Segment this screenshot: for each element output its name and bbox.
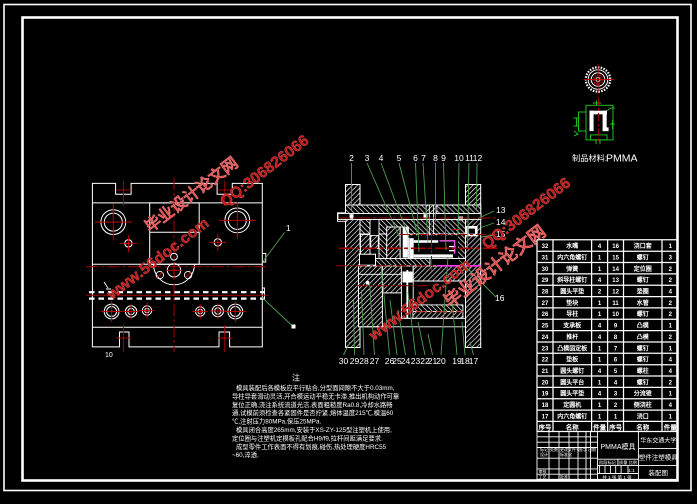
svg-text:2: 2 xyxy=(349,153,354,163)
svg-text:圆头螺钉: 圆头螺钉 xyxy=(560,367,584,375)
svg-text:28: 28 xyxy=(359,356,369,366)
svg-text:7: 7 xyxy=(421,153,426,163)
svg-text:1:1: 1:1 xyxy=(628,468,635,473)
svg-text:分流锥: 分流锥 xyxy=(634,390,652,398)
svg-text:20: 20 xyxy=(436,356,446,366)
svg-text:垫圈: 垫圈 xyxy=(637,288,649,296)
svg-text:23: 23 xyxy=(411,356,421,366)
svg-text:审核: 审核 xyxy=(539,468,547,474)
svg-text:导柱: 导柱 xyxy=(566,310,578,318)
svg-text:26: 26 xyxy=(542,312,549,318)
svg-text:16: 16 xyxy=(612,244,619,250)
svg-text:螺钉: 螺钉 xyxy=(637,310,649,318)
svg-text:成型零件工作表面不得有划痕,碰伤,热处理硬度HRC55: 成型零件工作表面不得有划痕,碰伤,热处理硬度HRC55 xyxy=(236,442,387,451)
svg-text:斜导柱螺钉: 斜导柱螺钉 xyxy=(556,276,587,284)
svg-text:14: 14 xyxy=(612,267,619,273)
svg-text:PMMA模具: PMMA模具 xyxy=(601,442,636,451)
svg-text:内六角螺钉: 内六角螺钉 xyxy=(557,412,587,420)
svg-text:复位正确,浇注系统流道光洁,表面粗糙度Ra0.8,冷却水路畅: 复位正确,浇注系统流道光洁,表面粗糙度Ra0.8,冷却水路畅 xyxy=(232,400,393,409)
svg-text:定位圈与注塑机定模板孔配合H9/f9,拉杆间距满足要求.: 定位圈与注塑机定模板孔配合H9/f9,拉杆间距满足要求. xyxy=(232,433,383,442)
svg-text:支承板: 支承板 xyxy=(562,322,582,330)
svg-text:圆头平台: 圆头平台 xyxy=(560,378,584,386)
svg-text:设计: 设计 xyxy=(540,451,548,457)
svg-text:螺钉: 螺钉 xyxy=(637,344,649,352)
svg-text:25: 25 xyxy=(542,324,549,330)
svg-text:13: 13 xyxy=(496,205,506,215)
svg-text:垫板: 垫板 xyxy=(566,356,579,364)
svg-text:工艺: 工艺 xyxy=(539,475,547,480)
svg-text:共 1 张 第 1 张: 共 1 张 第 1 张 xyxy=(602,474,632,481)
svg-text:3: 3 xyxy=(365,153,370,163)
svg-text:阶段标记: 阶段标记 xyxy=(599,459,617,466)
svg-text:24: 24 xyxy=(401,356,411,366)
svg-text:27: 27 xyxy=(370,356,380,366)
svg-text:℃,注射压力80MPa,保压25MPa.: ℃,注射压力80MPa,保压25MPa. xyxy=(232,417,321,426)
svg-text:12: 12 xyxy=(473,153,483,163)
svg-text:圆头平垫: 圆头平垫 xyxy=(560,390,584,398)
svg-text:23: 23 xyxy=(542,346,549,352)
svg-text:1: 1 xyxy=(286,223,291,233)
svg-text:10: 10 xyxy=(454,153,464,163)
svg-text:30: 30 xyxy=(339,356,349,366)
svg-text:28: 28 xyxy=(542,290,549,296)
svg-text:垫块: 垫块 xyxy=(566,299,579,307)
svg-text:PMMA: PMMA xyxy=(606,153,638,165)
svg-text:8: 8 xyxy=(433,153,438,163)
svg-text:凸模: 凸模 xyxy=(637,333,650,341)
svg-text:17: 17 xyxy=(469,356,479,366)
svg-text:水嘴: 水嘴 xyxy=(566,242,578,250)
svg-text:螺钉: 螺钉 xyxy=(637,356,649,364)
svg-text:水管: 水管 xyxy=(637,299,649,307)
svg-text:定圆机: 定圆机 xyxy=(562,401,581,409)
svg-text:~60,淬透.: ~60,淬透. xyxy=(232,450,259,459)
svg-text:30: 30 xyxy=(542,267,549,273)
svg-text:注: 注 xyxy=(292,373,300,383)
svg-text:10: 10 xyxy=(105,352,113,359)
svg-text:凸模: 凸模 xyxy=(637,322,650,330)
svg-text:13: 13 xyxy=(612,278,619,284)
svg-text:推杆: 推杆 xyxy=(566,333,578,341)
svg-text:9: 9 xyxy=(441,153,446,163)
svg-text:标记: 标记 xyxy=(540,446,548,452)
svg-text:装配图: 装配图 xyxy=(648,468,668,477)
svg-text:华东交通大学: 华东交通大学 xyxy=(640,437,676,445)
svg-text:16: 16 xyxy=(495,293,505,303)
svg-text:螺钉: 螺钉 xyxy=(637,378,649,386)
svg-text:19: 19 xyxy=(542,392,549,398)
svg-text:31: 31 xyxy=(542,256,549,262)
svg-text:21: 21 xyxy=(542,369,549,375)
svg-text:22: 22 xyxy=(542,358,549,364)
svg-text:制品材料:: 制品材料: xyxy=(572,153,607,163)
svg-text:4: 4 xyxy=(379,153,384,163)
svg-text:6: 6 xyxy=(413,153,418,163)
svg-text:导柱导套滑动灵活,开合模运动平稳无卡滞,推出机构动作可靠: 导柱导套滑动灵活,开合模运动平稳无卡滞,推出机构动作可靠 xyxy=(232,391,400,400)
svg-text:模具装配后各模板应平行贴合,分型面间隙不大于0.03mm,: 模具装配后各模板应平行贴合,分型面间隙不大于0.03mm, xyxy=(236,383,395,392)
svg-text:签字: 签字 xyxy=(579,446,587,452)
svg-text:10: 10 xyxy=(612,312,619,318)
svg-text:质量 比例: 质量 比例 xyxy=(619,459,637,466)
svg-text:圆头平垫: 圆头平垫 xyxy=(560,288,584,296)
svg-text:批准: 批准 xyxy=(560,474,568,480)
svg-text:标准化: 标准化 xyxy=(560,451,572,457)
svg-text:处数: 处数 xyxy=(550,446,558,452)
svg-text:18: 18 xyxy=(542,403,549,409)
svg-text:浇口套: 浇口套 xyxy=(634,242,652,250)
svg-text:日期: 日期 xyxy=(588,446,596,452)
svg-text:螺钉: 螺钉 xyxy=(637,254,649,262)
svg-text:17: 17 xyxy=(542,414,549,420)
svg-text:12: 12 xyxy=(612,290,619,296)
svg-text:螺柱: 螺柱 xyxy=(637,367,649,375)
svg-text:件量: 件量 xyxy=(664,422,678,431)
svg-text:侧浇柱: 侧浇柱 xyxy=(634,401,652,409)
svg-text:更改文件号: 更改文件号 xyxy=(560,446,580,452)
svg-text:定位圈: 定位圈 xyxy=(633,265,652,273)
svg-text:模具闭合高度265mm,安装于XS-ZY-125型注塑机上使: 模具闭合高度265mm,安装于XS-ZY-125型注塑机上使用, xyxy=(236,425,392,434)
svg-text:20: 20 xyxy=(542,380,549,386)
svg-text:序号: 序号 xyxy=(608,422,623,431)
svg-text:32: 32 xyxy=(542,244,549,250)
svg-text:11: 11 xyxy=(612,301,619,307)
svg-text:弹簧: 弹簧 xyxy=(566,265,578,273)
svg-text:29: 29 xyxy=(350,356,360,366)
svg-text:浇口: 浇口 xyxy=(637,412,649,420)
svg-text:通,试模前须检查各紧固件是否拧紧,熔体温度215℃,模温60: 通,试模前须检查各紧固件是否拧紧,熔体温度215℃,模温60 xyxy=(232,408,394,417)
svg-text:名称: 名称 xyxy=(566,422,580,431)
svg-text:内六角螺钉: 内六角螺钉 xyxy=(557,254,587,262)
svg-text:29: 29 xyxy=(542,278,549,284)
svg-text:27: 27 xyxy=(542,301,549,307)
svg-text:螺钉: 螺钉 xyxy=(637,276,649,284)
svg-text:件量: 件量 xyxy=(593,422,607,431)
svg-text:24: 24 xyxy=(542,335,549,341)
svg-text:5: 5 xyxy=(397,153,402,163)
svg-text:15: 15 xyxy=(612,256,619,262)
svg-text:塑件注塑模具: 塑件注塑模具 xyxy=(639,453,679,462)
svg-text:凸模固定板: 凸模固定板 xyxy=(557,344,588,352)
svg-text:序号: 序号 xyxy=(538,422,553,431)
svg-text:名称: 名称 xyxy=(636,422,650,431)
